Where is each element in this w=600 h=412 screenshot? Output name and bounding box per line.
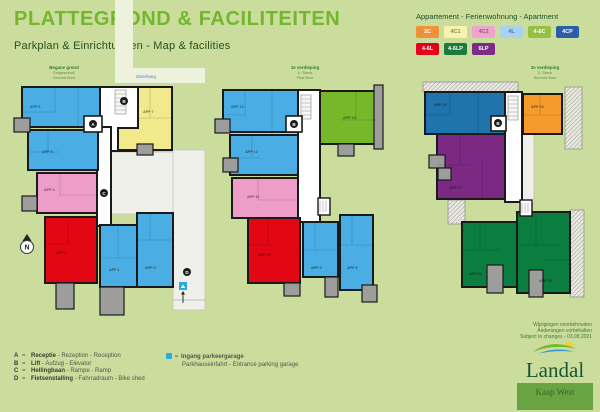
facilities-map: Zwerfweg	[0, 0, 600, 412]
svg-text:First floor: First floor	[297, 75, 314, 80]
facility-row: C=Hellingbaan - Rampe - Ramp	[14, 368, 145, 376]
apartment-17	[437, 134, 505, 199]
apartment-label: APP 16	[469, 272, 482, 276]
apartment-3	[137, 213, 173, 287]
marker-lift: B	[290, 120, 298, 128]
facility-row: B=Lift - Aufzug - Elevator	[14, 361, 145, 369]
parking-legend: =Ingang parkeergarage Parkhauseinfahrt -…	[166, 353, 298, 369]
apartment-label: APP 19	[434, 103, 447, 107]
apartment-20	[523, 94, 562, 134]
brand-name: Landal	[517, 361, 593, 380]
apartment-label: APP 1	[109, 268, 120, 272]
road	[115, 68, 205, 83]
road	[115, 0, 133, 70]
apartment-8	[340, 215, 373, 290]
marker-lift: B	[494, 119, 502, 127]
driveway	[173, 150, 205, 310]
marker-bike-shed: D	[183, 268, 191, 276]
apartment-11	[232, 178, 298, 218]
svg-text:N: N	[24, 245, 29, 252]
apartment-label: APP 17	[449, 186, 462, 190]
facility-row: A=Receptie - Rezeption - Reception	[14, 353, 145, 361]
apartment-label: APP 8	[347, 266, 358, 270]
parking-translations: Parkhauseinfahrt - Entrance parking gara…	[182, 362, 298, 370]
floor-title-first: 1e verdieping 1. Stock First floor	[291, 65, 320, 80]
road-label: Zwerfweg	[136, 74, 156, 79]
apartment-label: APP 15	[539, 279, 552, 283]
apartment-label: APP 12	[245, 150, 258, 154]
apartment-label: APP 11	[247, 195, 259, 199]
floor-title-ground: Begane grond Erdgeschoß Ground floor	[49, 65, 79, 80]
page: PLATTEGROND & FACILITEITEN Parkplan & Ei…	[0, 0, 600, 412]
parking-name: Ingang parkeergarage	[181, 354, 244, 360]
terrace	[522, 134, 534, 204]
apartment-label: APP 3	[145, 266, 156, 270]
marker-reception: A	[89, 120, 97, 128]
apartment-5	[28, 130, 98, 170]
disclaimer-note: Wijzigingen voorbehouden Änderungen vorb…	[492, 322, 592, 340]
apartment-10	[248, 218, 300, 283]
floor-title-second: 2e verdieping 2. Stock Second floor	[531, 65, 560, 80]
apartment-label: APP 6	[30, 105, 41, 109]
second-floor-plan: B APP 19 APP 20 APP 17 APP 16 APP 15 2e …	[423, 65, 584, 297]
apartment-4	[37, 173, 97, 213]
apartment-label: APP 10	[258, 253, 271, 257]
landal-swoosh-icon	[531, 340, 579, 356]
park-name: Kaap West	[517, 383, 593, 410]
apartment-label: APP 2	[56, 251, 67, 255]
svg-text:Ground floor: Ground floor	[53, 75, 76, 80]
first-floor-plan: B APP 13 APP 14 APP 12 APP 11 APP 10 APP…	[215, 65, 383, 302]
apartment-label: APP 9	[311, 266, 322, 270]
apartment-label: APP 7	[143, 110, 154, 114]
apartment-2	[45, 217, 97, 283]
compass-north-icon: N	[21, 234, 34, 254]
svg-text:Second floor: Second floor	[534, 75, 557, 80]
apartment-12	[230, 135, 298, 175]
facilities-legend: A=Receptie - Rezeption - Reception B=Lif…	[14, 353, 145, 383]
facility-row: D=Fietsenstalling - Fahrradraum - Bike s…	[14, 376, 145, 384]
apartment-label: APP 5	[42, 150, 53, 154]
ground-floor-plan: Zwerfweg	[14, 0, 205, 315]
apartment-label: APP 14	[343, 116, 357, 120]
corridor	[97, 127, 111, 226]
landal-logo: Landal Kaap West	[517, 340, 593, 410]
apartment-label: APP 4	[44, 188, 56, 192]
marker-lift: B	[120, 97, 128, 105]
apartment-label: APP 20	[531, 105, 544, 109]
marker-ramp: C	[100, 189, 108, 197]
apartment-label: APP 13	[231, 105, 244, 109]
apartment-1	[100, 225, 137, 287]
